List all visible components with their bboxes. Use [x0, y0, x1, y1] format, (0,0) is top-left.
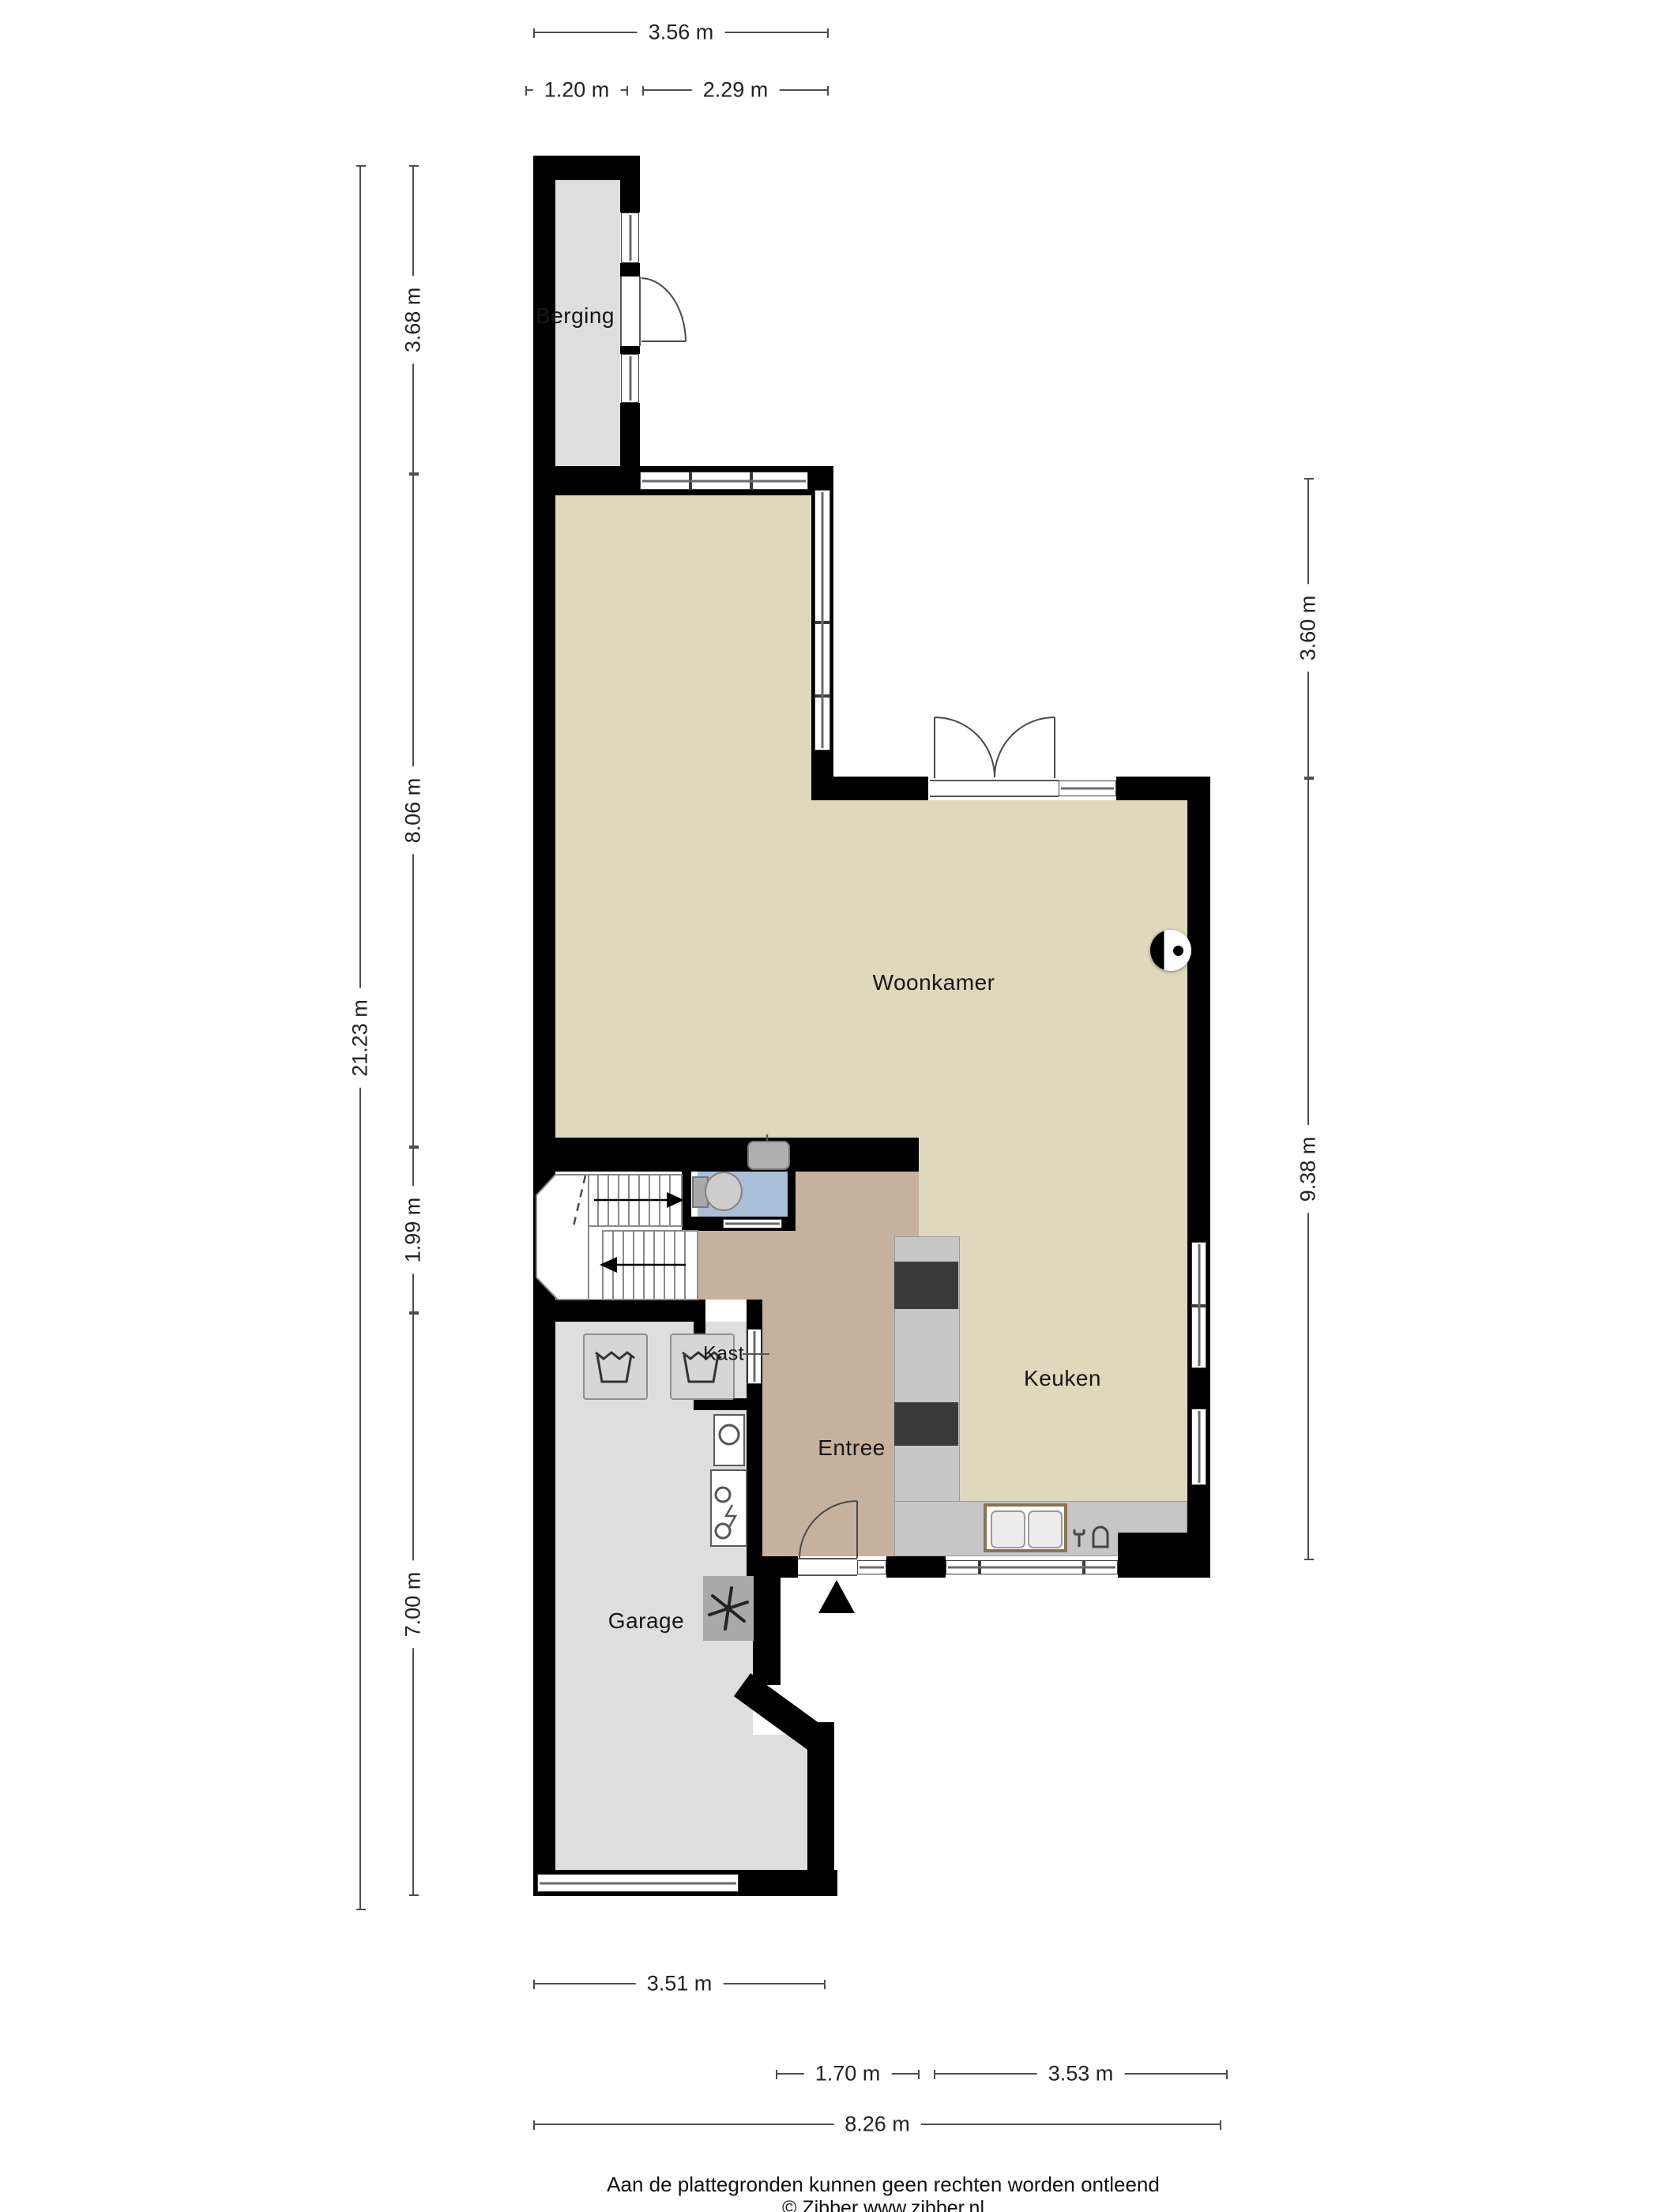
- keuken-window-right: [1191, 1409, 1206, 1485]
- entrance-door-opening: [798, 1558, 857, 1576]
- toilet-bowl-icon: [705, 1172, 743, 1211]
- room-label-keuken: Keuken: [1024, 1366, 1101, 1391]
- dim-right-lower: 9.38 m: [1307, 778, 1309, 1560]
- meter-box: [713, 1414, 745, 1466]
- room-label-kast: Kast: [703, 1343, 744, 1366]
- dim-bottom-garage: 3.51 m: [533, 1983, 826, 1984]
- dim-label: 1.20 m: [533, 78, 621, 103]
- dim-left-garage: 7.00 m: [412, 1313, 414, 1896]
- berging-wall-right: [620, 403, 640, 466]
- dim-left-berging: 3.68 m: [412, 165, 414, 474]
- mechanical-ventilation-unit: [703, 1576, 754, 1641]
- dim-label: 21.23 m: [348, 988, 373, 1088]
- dim-label: 8.26 m: [833, 2112, 921, 2137]
- garage-wall-right-lower: [807, 1722, 834, 1872]
- dim-left-woonkamer: 8.06 m: [412, 474, 414, 1147]
- keuken-wall-top: [833, 777, 928, 800]
- footer-line1: Aan de plattegronden kunnen geen rechten…: [607, 2172, 1160, 2197]
- thermostat-icon: [1150, 930, 1191, 971]
- cooktop: [894, 1402, 958, 1446]
- berging-window: [621, 213, 639, 263]
- entrance-arrow: [818, 1580, 855, 1613]
- sink-basin: [1028, 1510, 1063, 1548]
- french-doors: [935, 717, 1055, 778]
- berging-wall-right: [620, 346, 640, 354]
- dim-bottom-total: 8.26 m: [533, 2124, 1221, 2125]
- berging-wall-right: [620, 180, 640, 213]
- woonkamer-window-top: [640, 472, 808, 490]
- toilet-window: [723, 1219, 782, 1228]
- kast-wall-bottom: [694, 1398, 762, 1410]
- berging-door-opening: [620, 276, 641, 346]
- woonkamer-window-right: [814, 490, 830, 750]
- berging-wall-top: [533, 156, 640, 180]
- dim-label: 1.70 m: [804, 2062, 892, 2086]
- room-label-woonkamer: Woonkamer: [873, 970, 995, 995]
- room-label-berging: Berging: [536, 303, 615, 329]
- stairs-floor: [536, 1172, 698, 1300]
- berging-wall-right: [620, 263, 640, 276]
- footer-disclaimer: Aan de plattegronden kunnen geen rechten…: [607, 2172, 1160, 2212]
- dim-label: 1.99 m: [401, 1187, 426, 1274]
- dim-bottom-entree: 1.70 m: [776, 2073, 920, 2075]
- footer-line2: © Zibber www.zibber.nl: [607, 2197, 1160, 2212]
- dim-left-total: 21.23 m: [359, 165, 361, 1910]
- woonkamer-floor: [555, 495, 1187, 1147]
- room-label-garage: Garage: [608, 1608, 684, 1634]
- dim-label: 3.51 m: [636, 1972, 724, 1996]
- french-door-opening: [930, 780, 1059, 797]
- cooktop: [894, 1262, 958, 1309]
- outer-wall-left: [533, 156, 555, 1896]
- dim-top-total: 3.56 m: [533, 32, 829, 33]
- dim-top-left: 1.20 m: [525, 89, 628, 91]
- dim-label: 8.06 m: [401, 767, 426, 855]
- keuken-wall-top: [1116, 777, 1210, 800]
- meter-box: [710, 1469, 747, 1547]
- dim-right-upper: 3.60 m: [1307, 478, 1309, 778]
- dim-label: 2.29 m: [692, 78, 780, 103]
- dim-top-right: 2.29 m: [642, 89, 829, 91]
- dim-label: 9.38 m: [1296, 1126, 1321, 1213]
- garage-floor: [753, 1735, 807, 1870]
- dim-bottom-keuken: 3.53 m: [934, 2073, 1228, 2075]
- room-label-entree: Entree: [818, 1435, 886, 1461]
- washing-machine: [583, 1334, 648, 1400]
- garage-wall-right: [753, 1556, 781, 1685]
- keuken-window-right: [1191, 1242, 1206, 1368]
- dim-label: 3.53 m: [1037, 2062, 1125, 2086]
- sink-basin: [991, 1510, 1025, 1548]
- bottom-wall-pier: [886, 1556, 946, 1578]
- keuken-window-bottom: [946, 1560, 1118, 1574]
- garage-wall-top: [533, 1300, 705, 1322]
- dim-label: 3.56 m: [638, 21, 725, 45]
- thermostat-dot: [1173, 946, 1183, 956]
- entree-floor: [698, 1231, 796, 1300]
- dim-left-hal: 1.99 m: [412, 1147, 414, 1313]
- entrance-sidelight-window: [857, 1560, 886, 1574]
- bottom-wall-corner: [1118, 1533, 1210, 1578]
- stair-toilet-divider-wall: [682, 1172, 691, 1231]
- berging-window: [621, 354, 639, 403]
- keuken-window-top: [1059, 781, 1116, 796]
- floorplan-page: Berging Woonkamer Keuken Entree Kast Gar…: [0, 0, 1659, 2212]
- entree-floor: [762, 1300, 798, 1556]
- entree-floor: [796, 1172, 894, 1556]
- kast-window: [747, 1329, 762, 1384]
- kitchen-sink: [984, 1503, 1067, 1552]
- woonkamer-wall-bottom: [533, 1138, 919, 1172]
- dim-label: 7.00 m: [401, 1561, 426, 1649]
- garage-window-bottom: [537, 1874, 739, 1892]
- toilet-sink-icon: [747, 1141, 790, 1170]
- berging-door: [641, 278, 686, 341]
- dim-label: 3.68 m: [401, 276, 426, 363]
- dim-label: 3.60 m: [1296, 585, 1321, 672]
